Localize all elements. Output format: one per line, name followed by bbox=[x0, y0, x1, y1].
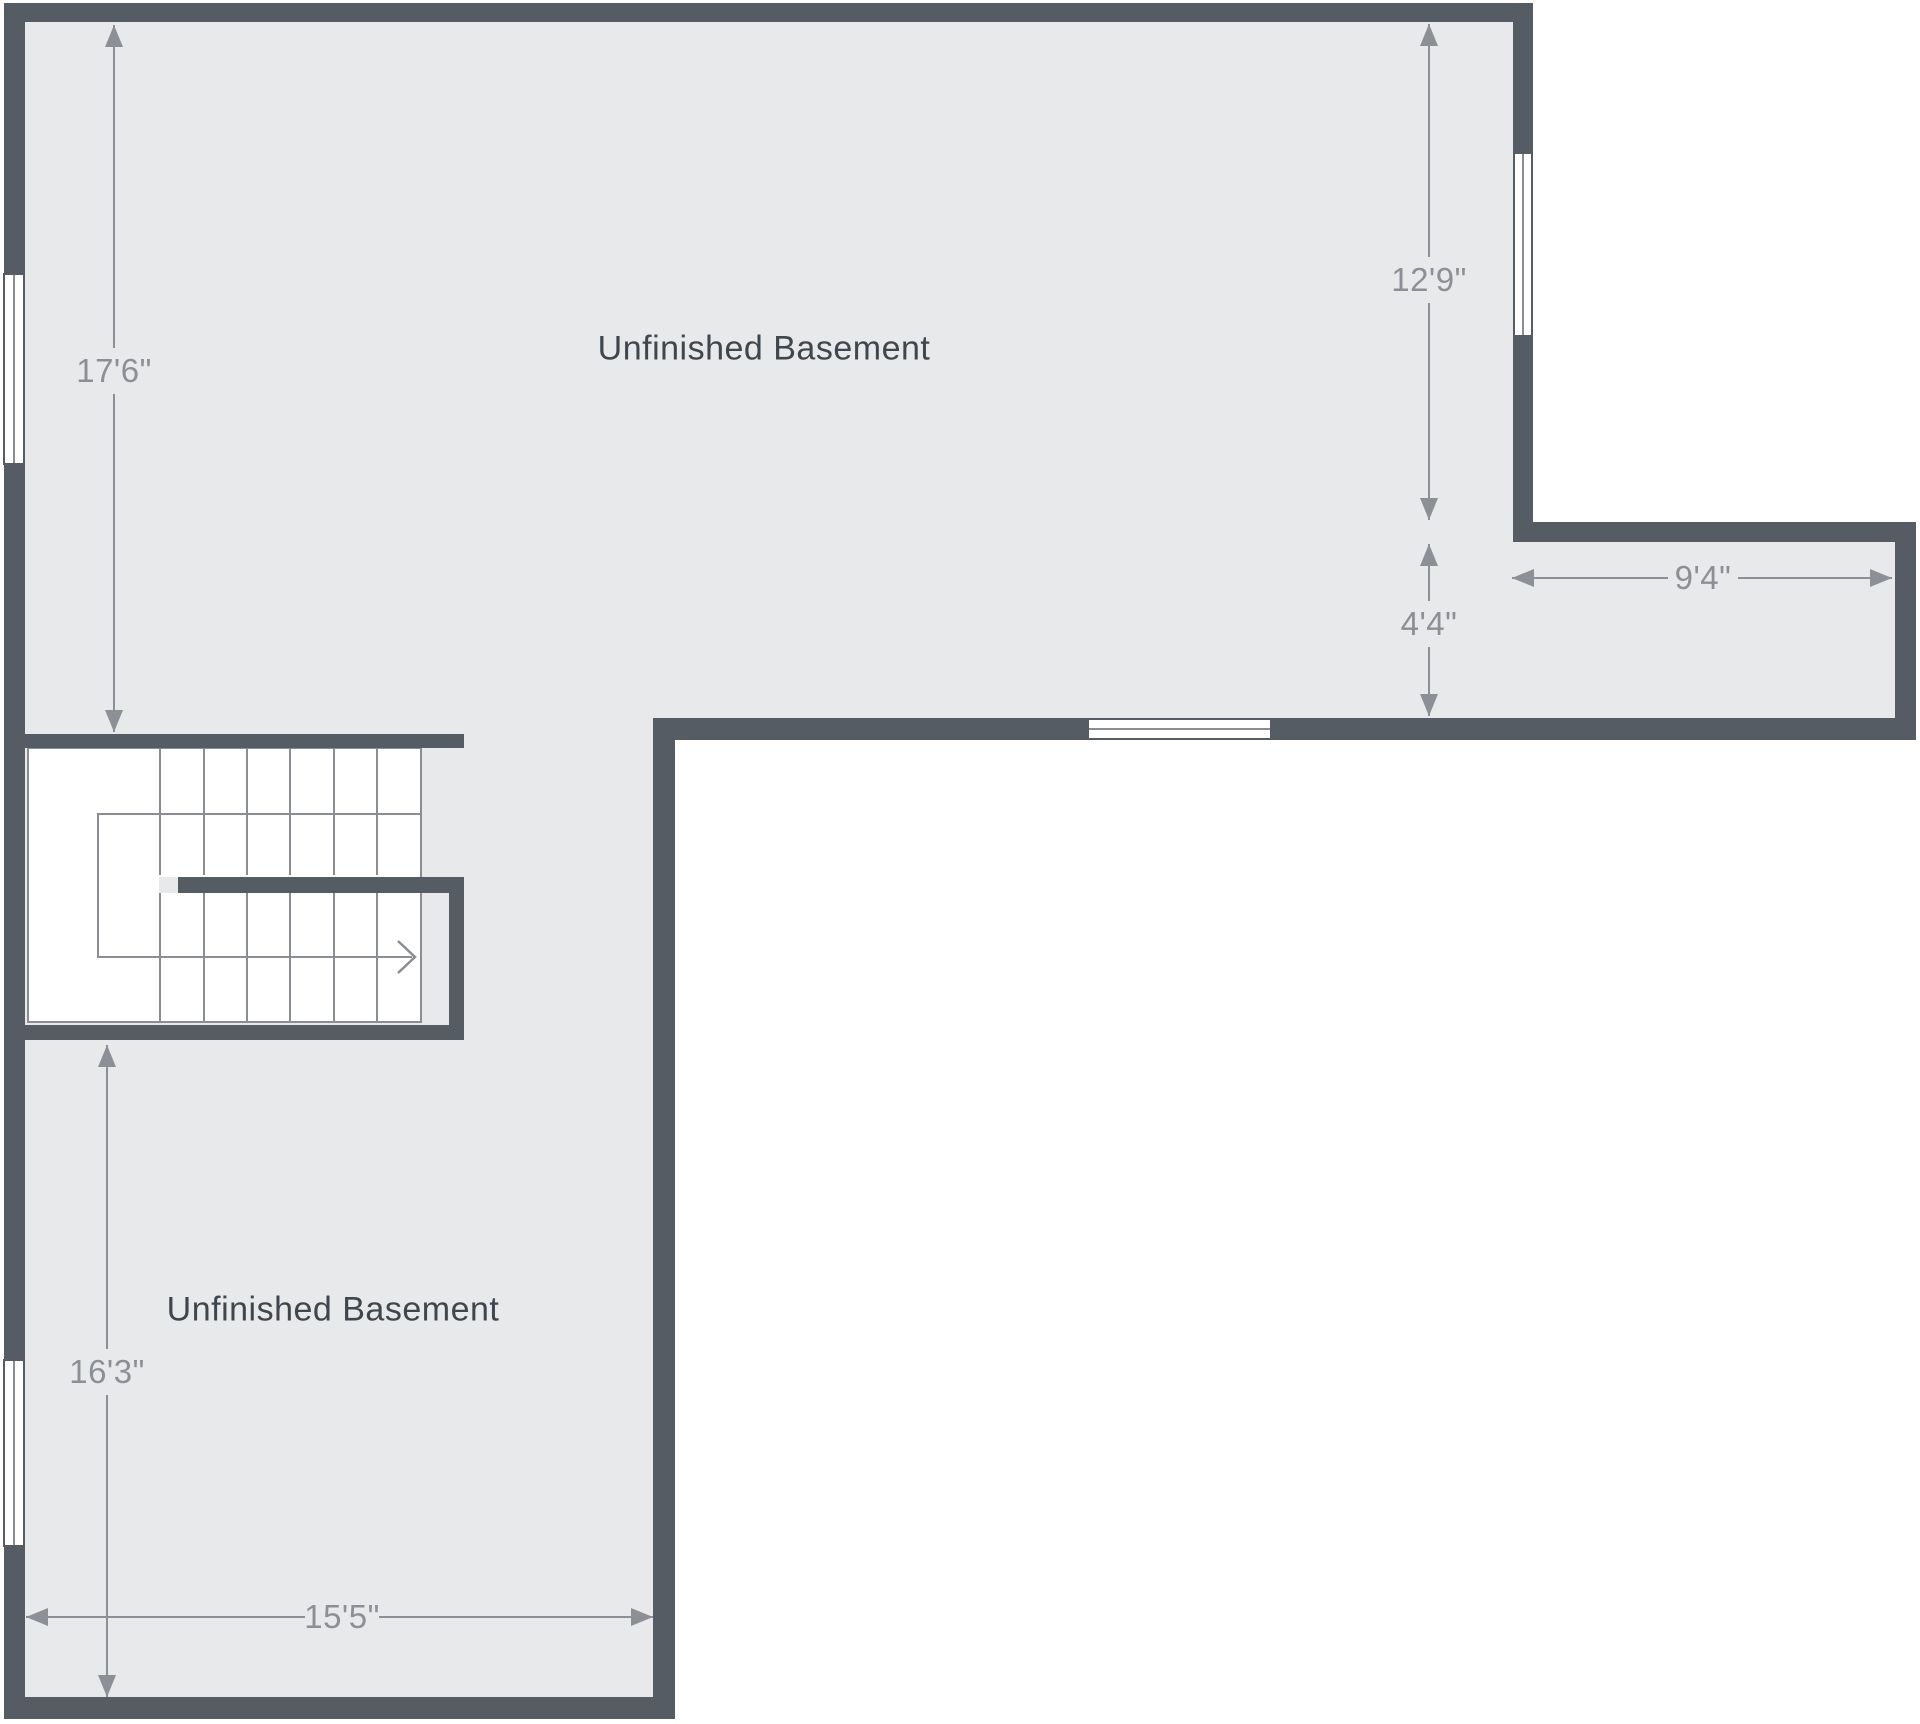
dimension-line bbox=[26, 1616, 305, 1618]
arrowhead-down-icon bbox=[105, 710, 123, 732]
dimension-line bbox=[1428, 24, 1430, 257]
window-bottom-upper-area bbox=[1087, 718, 1272, 740]
window-left-upper bbox=[3, 273, 25, 465]
window-right-upper bbox=[1513, 152, 1533, 337]
dimension-label: 12'9" bbox=[1391, 261, 1467, 299]
wall-lower-bottom bbox=[4, 1697, 675, 1719]
room-label-lower: Unfinished Basement bbox=[167, 1291, 500, 1330]
arrowhead-up-icon bbox=[1420, 24, 1438, 46]
dimension-label: 9'4" bbox=[1675, 559, 1732, 597]
stair-tread bbox=[289, 748, 291, 875]
arrowhead-down-icon bbox=[1420, 694, 1438, 716]
dimension-line bbox=[1512, 577, 1668, 579]
dimension-line bbox=[1428, 303, 1430, 520]
floor-plan: 17'6" 12'9" 4'4" 9'4" 16'3" 15'5" Unfini… bbox=[0, 0, 1920, 1724]
dimension-label: 17'6" bbox=[76, 352, 152, 390]
wall-upper-bottom bbox=[653, 718, 1916, 740]
arrowhead-down-icon bbox=[1420, 498, 1438, 520]
dimension-line bbox=[1738, 577, 1892, 579]
dimension-line bbox=[379, 1616, 653, 1618]
arrowhead-left-icon bbox=[1512, 569, 1534, 587]
room-label-upper: Unfinished Basement bbox=[598, 330, 931, 369]
arrowhead-up-icon bbox=[105, 25, 123, 47]
wall-stair-bottom bbox=[4, 1025, 464, 1040]
dimension-line bbox=[113, 25, 115, 348]
stair-tread bbox=[159, 748, 161, 875]
stair-tread bbox=[246, 748, 248, 875]
stair-walkline bbox=[97, 813, 99, 958]
wall-wing-top bbox=[1513, 522, 1916, 542]
dimension-line bbox=[106, 1045, 108, 1349]
dimension-line bbox=[113, 394, 115, 732]
wall-stair-center bbox=[178, 877, 464, 893]
wall-top bbox=[4, 3, 1533, 22]
stair-walkline bbox=[97, 956, 412, 958]
stair-direction-arrow-icon bbox=[395, 937, 425, 977]
wall-stair-top bbox=[4, 734, 464, 748]
dimension-line bbox=[106, 1395, 108, 1697]
arrowhead-left-icon bbox=[26, 1608, 48, 1626]
arrowhead-down-icon bbox=[98, 1675, 116, 1697]
arrowhead-right-icon bbox=[1870, 569, 1892, 587]
arrowhead-up-icon bbox=[98, 1045, 116, 1067]
arrowhead-right-icon bbox=[631, 1608, 653, 1626]
dimension-label: 15'5" bbox=[304, 1598, 380, 1636]
window-left-lower bbox=[3, 1359, 25, 1547]
stair-tread bbox=[376, 748, 378, 875]
window-pane-divider bbox=[13, 275, 15, 463]
window-pane-divider bbox=[1522, 154, 1524, 335]
wall-wing-right bbox=[1895, 522, 1916, 740]
wall-stair-right bbox=[449, 877, 464, 1040]
wall-lower-room-right bbox=[653, 718, 675, 1719]
floor-upper-room bbox=[25, 22, 1513, 718]
stair-walkline bbox=[97, 813, 421, 815]
arrowhead-up-icon bbox=[1420, 544, 1438, 566]
window-pane-divider bbox=[13, 1361, 15, 1545]
dimension-label: 4'4" bbox=[1401, 605, 1458, 643]
window-pane-divider bbox=[1089, 728, 1270, 730]
stair-center-wall-notch bbox=[159, 877, 178, 893]
stair-tread bbox=[203, 748, 205, 875]
dimension-label: 16'3" bbox=[69, 1353, 145, 1391]
stair-tread bbox=[333, 748, 335, 875]
